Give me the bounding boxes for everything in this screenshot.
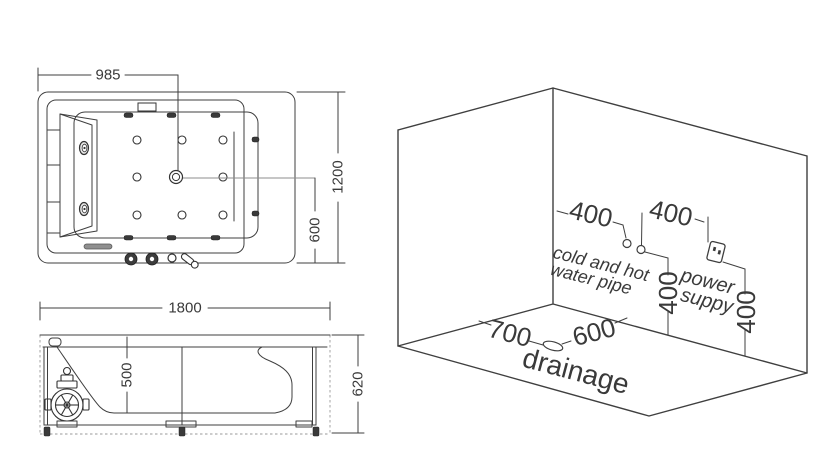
- drain-icon: [170, 171, 183, 184]
- control-knob-icon: [146, 253, 158, 265]
- dimension-pipe-400: 400: [557, 195, 626, 238]
- water-pipe-label: cold and hot water pipe: [547, 242, 652, 302]
- dimension-620: 620: [332, 335, 367, 433]
- overflow-slot: [84, 244, 112, 249]
- leg-foot: [179, 427, 185, 436]
- side-jet-icon: [80, 142, 89, 155]
- headrest: [60, 114, 97, 237]
- dim-label: 400: [646, 194, 695, 233]
- dim-label: 400: [731, 290, 761, 333]
- leg-foot: [313, 427, 319, 436]
- overflow-detail: [49, 338, 61, 346]
- dim-label: 600: [307, 217, 324, 242]
- bathtub-installation-drawing: 985 1200 600: [0, 0, 824, 461]
- dimension-outlet-400: 400: [642, 194, 709, 245]
- power-supply-label: power suppy: [673, 264, 741, 318]
- power-outlet-icon: [706, 241, 725, 263]
- side-view-diagram: 1800 500 620: [40, 300, 367, 437]
- air-control-icon: [168, 254, 176, 262]
- dimension-pipe-height-400: 400: [645, 252, 683, 335]
- installation-room-diagram: 400 400 400: [398, 88, 807, 416]
- dim-label: 600: [569, 312, 619, 352]
- dim-label: 1800: [168, 300, 201, 317]
- dim-label: 1200: [330, 160, 347, 193]
- dim-label: 400: [566, 195, 615, 234]
- dim-label: 400: [653, 271, 683, 314]
- dimension-985: 985: [38, 67, 178, 171]
- top-view-diagram: 985 1200 600: [38, 67, 347, 270]
- pump-icon: [45, 368, 89, 422]
- water-pipe-outlet-icon: [637, 246, 645, 254]
- dimension-500: 500: [119, 337, 136, 413]
- dim-label: 500: [119, 362, 136, 387]
- tub-inner-rim: [47, 100, 244, 253]
- dim-label: 620: [350, 371, 367, 396]
- dim-label: 985: [95, 67, 120, 84]
- side-jet-icon: [80, 203, 89, 216]
- leg-foot: [44, 427, 50, 436]
- dimension-600-top: 600: [183, 178, 324, 263]
- control-panel-slot: [138, 103, 156, 111]
- dimension-drain-600: 600: [562, 312, 627, 352]
- basin-profile: [57, 347, 292, 413]
- control-knob-icon: [125, 253, 137, 265]
- dimension-1800: 1800: [40, 300, 330, 321]
- tub-basin: [74, 112, 258, 238]
- rim-jets: [124, 113, 259, 240]
- water-pipe-outlet-icon: [623, 240, 631, 248]
- faucet-icon: [180, 252, 199, 269]
